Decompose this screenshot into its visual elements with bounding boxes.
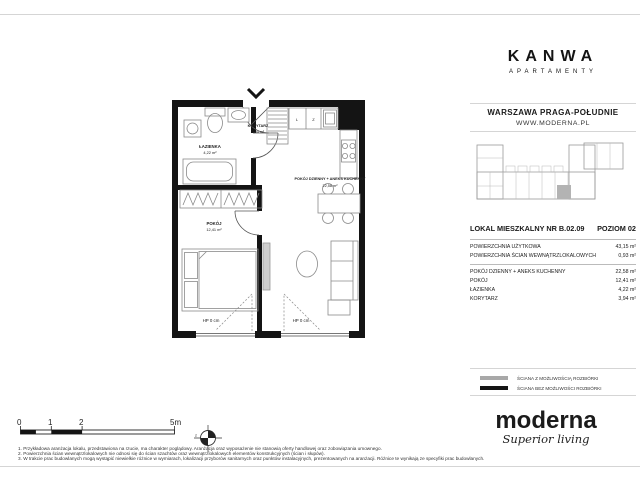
footnote-3: 3. W trakcie prac budowlanych mogą wystą…	[18, 456, 488, 461]
legend-item: ŚCIANA Z MOŻLIWOŚCIĄ ROZBIÓRKI	[480, 374, 636, 382]
table-row: POKÓJ 12,41 m²	[470, 277, 636, 286]
table-row: POWIERZCHNIA UŻYTKOWA 43,15 m²	[470, 243, 636, 252]
tv-stand-icon	[263, 243, 270, 290]
row-label: POKÓJ DZIENNY + ANEKS KUCHENNY	[470, 268, 565, 277]
row-value: 22,58 m²	[616, 268, 636, 277]
row-value: 4,22 m²	[618, 286, 636, 295]
row-label: POWIERZCHNIA UŻYTKOWA	[470, 243, 541, 252]
brand-subtitle: APARTAMENTY	[466, 69, 640, 75]
unit-location-highlight	[557, 185, 571, 199]
window-hp-label-right: HP 0 cm	[293, 318, 310, 323]
room-area-bedroom: 12,41 m²	[206, 227, 222, 232]
black-wall-swatch	[480, 386, 508, 390]
room-area-bathroom: 4,22 m²	[203, 150, 217, 155]
site-plan-key	[465, 135, 635, 210]
divider	[470, 395, 636, 396]
website-label: WWW.MODERNA.PL	[466, 120, 640, 127]
table-row: KORYTARZ 3,94 m²	[470, 295, 636, 304]
row-label: POWIERZCHNIA ŚCIAN WEWNĄTRZLOKALOWYCH	[470, 252, 596, 261]
legend-label: ŚCIANA BEZ MOŻLIWOŚCI ROZBIÓRKI	[517, 386, 601, 391]
divider	[470, 264, 636, 265]
room-label-corridor: KORYTARZ	[248, 124, 269, 128]
row-value: 12,41 m²	[616, 277, 636, 286]
room-area-living: 22,58 m²	[323, 184, 339, 188]
compass-west-label: z	[195, 433, 197, 438]
bed-icon	[182, 249, 258, 311]
legend-item: ŚCIANA BEZ MOŻLIWOŚCI ROZBIÓRKI	[480, 384, 636, 392]
unit-header: LOKAL MIESZKALNY NR B.02.09 POZIOM 02	[470, 224, 636, 233]
table-row: POWIERZCHNIA ŚCIAN WEWNĄTRZLOKALOWYCH 0,…	[470, 252, 636, 261]
table-row: ŁAZIENKA 4,22 m²	[470, 286, 636, 295]
window-hp-label-left: HP 0 cm	[203, 318, 220, 323]
row-value: 3,94 m²	[618, 295, 636, 304]
unit-title: LOKAL MIESZKALNY NR B.02.09	[470, 224, 584, 233]
toilet-icon	[205, 108, 225, 116]
divider	[470, 131, 636, 132]
row-label: POKÓJ	[470, 277, 488, 286]
unit-level: POZIOM 02	[597, 224, 636, 233]
brand-name: KANWA	[466, 48, 640, 66]
plan-sheet: L Z Ł	[0, 0, 640, 480]
entrance-arrow-icon	[248, 89, 264, 97]
moderna-logo: moderna	[458, 410, 634, 432]
wall-legend: ŚCIANA Z MOŻLIWOŚCIĄ ROZBIÓRKI ŚCIANA BE…	[480, 374, 636, 392]
divider	[470, 239, 636, 240]
kitchen-column	[338, 103, 359, 130]
divider	[470, 103, 636, 104]
area-summary: POWIERZCHNIA UŻYTKOWA 43,15 m² POWIERZCH…	[470, 243, 636, 261]
row-label: KORYTARZ	[470, 295, 498, 304]
room-areas: POKÓJ DZIENNY + ANEKS KUCHENNY 22,58 m² …	[470, 268, 636, 304]
floor-plan: L Z Ł	[150, 83, 375, 345]
bottom-rule	[0, 466, 640, 467]
legend-label: ŚCIANA Z MOŻLIWOŚCIĄ ROZBIÓRKI	[517, 376, 598, 381]
fridge-label: L	[296, 117, 299, 122]
rug-icon	[297, 251, 318, 277]
dining-set-icon	[318, 184, 360, 224]
room-label-bedroom: POKÓJ	[206, 221, 222, 226]
room-area-corridor: 3,94 m²	[252, 130, 265, 134]
room-label-bathroom: ŁAZIENKA	[199, 144, 221, 149]
row-value: 43,15 m²	[616, 243, 636, 252]
divider	[470, 368, 636, 369]
washer-icon	[184, 120, 201, 137]
row-label: ŁAZIENKA	[470, 286, 495, 295]
balcony-door-swings	[216, 294, 320, 331]
row-value: 0,93 m²	[618, 252, 636, 261]
dishwasher-label: Z	[312, 117, 315, 122]
top-rule	[0, 14, 640, 15]
room-label-living: POKÓJ DZIENNY + ANEKS KUCHENNY	[295, 176, 366, 181]
location-label: WARSZAWA PRAGA-POŁUDNIE	[466, 108, 640, 117]
footer-brand: moderna Superior living	[458, 410, 634, 446]
moderna-tagline: Superior living	[458, 432, 634, 446]
table-row: POKÓJ DZIENNY + ANEKS KUCHENNY 22,58 m²	[470, 268, 636, 277]
ottoman-icon	[328, 300, 350, 315]
gray-wall-swatch	[480, 376, 508, 380]
sofa-icon	[331, 241, 358, 300]
brand-block: KANWA APARTAMENTY	[466, 48, 640, 75]
